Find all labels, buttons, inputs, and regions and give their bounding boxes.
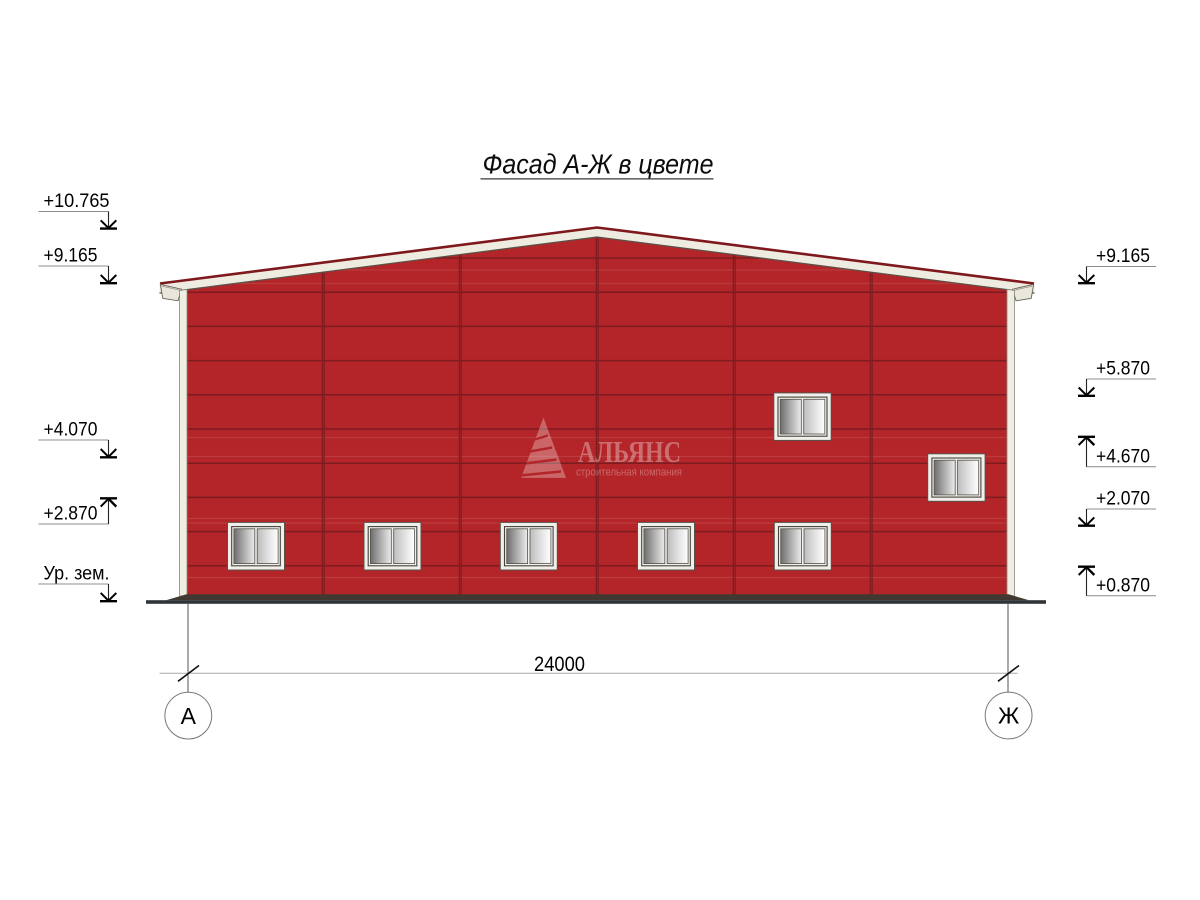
svg-text:А: А: [181, 703, 197, 729]
svg-text:+9.165: +9.165: [44, 245, 98, 267]
svg-text:Ж: Ж: [998, 703, 1019, 729]
svg-text:+4.670: +4.670: [1096, 445, 1150, 467]
svg-text:+4.070: +4.070: [44, 419, 98, 441]
svg-text:24000: 24000: [534, 652, 585, 676]
svg-text:Ур. зем.: Ур. зем.: [44, 563, 110, 585]
svg-text:+0.870: +0.870: [1096, 574, 1150, 596]
svg-text:строительная компания: строительная компания: [576, 467, 682, 479]
svg-text:Фасад А-Ж в цвете: Фасад А-Ж в цвете: [483, 149, 714, 180]
svg-text:+2.070: +2.070: [1096, 488, 1150, 510]
svg-text:АЛЬЯНС: АЛЬЯНС: [578, 434, 681, 469]
svg-text:+9.165: +9.165: [1096, 245, 1150, 267]
svg-text:+10.765: +10.765: [44, 190, 110, 212]
svg-text:+2.870: +2.870: [44, 503, 98, 525]
svg-text:+5.870: +5.870: [1096, 358, 1150, 380]
